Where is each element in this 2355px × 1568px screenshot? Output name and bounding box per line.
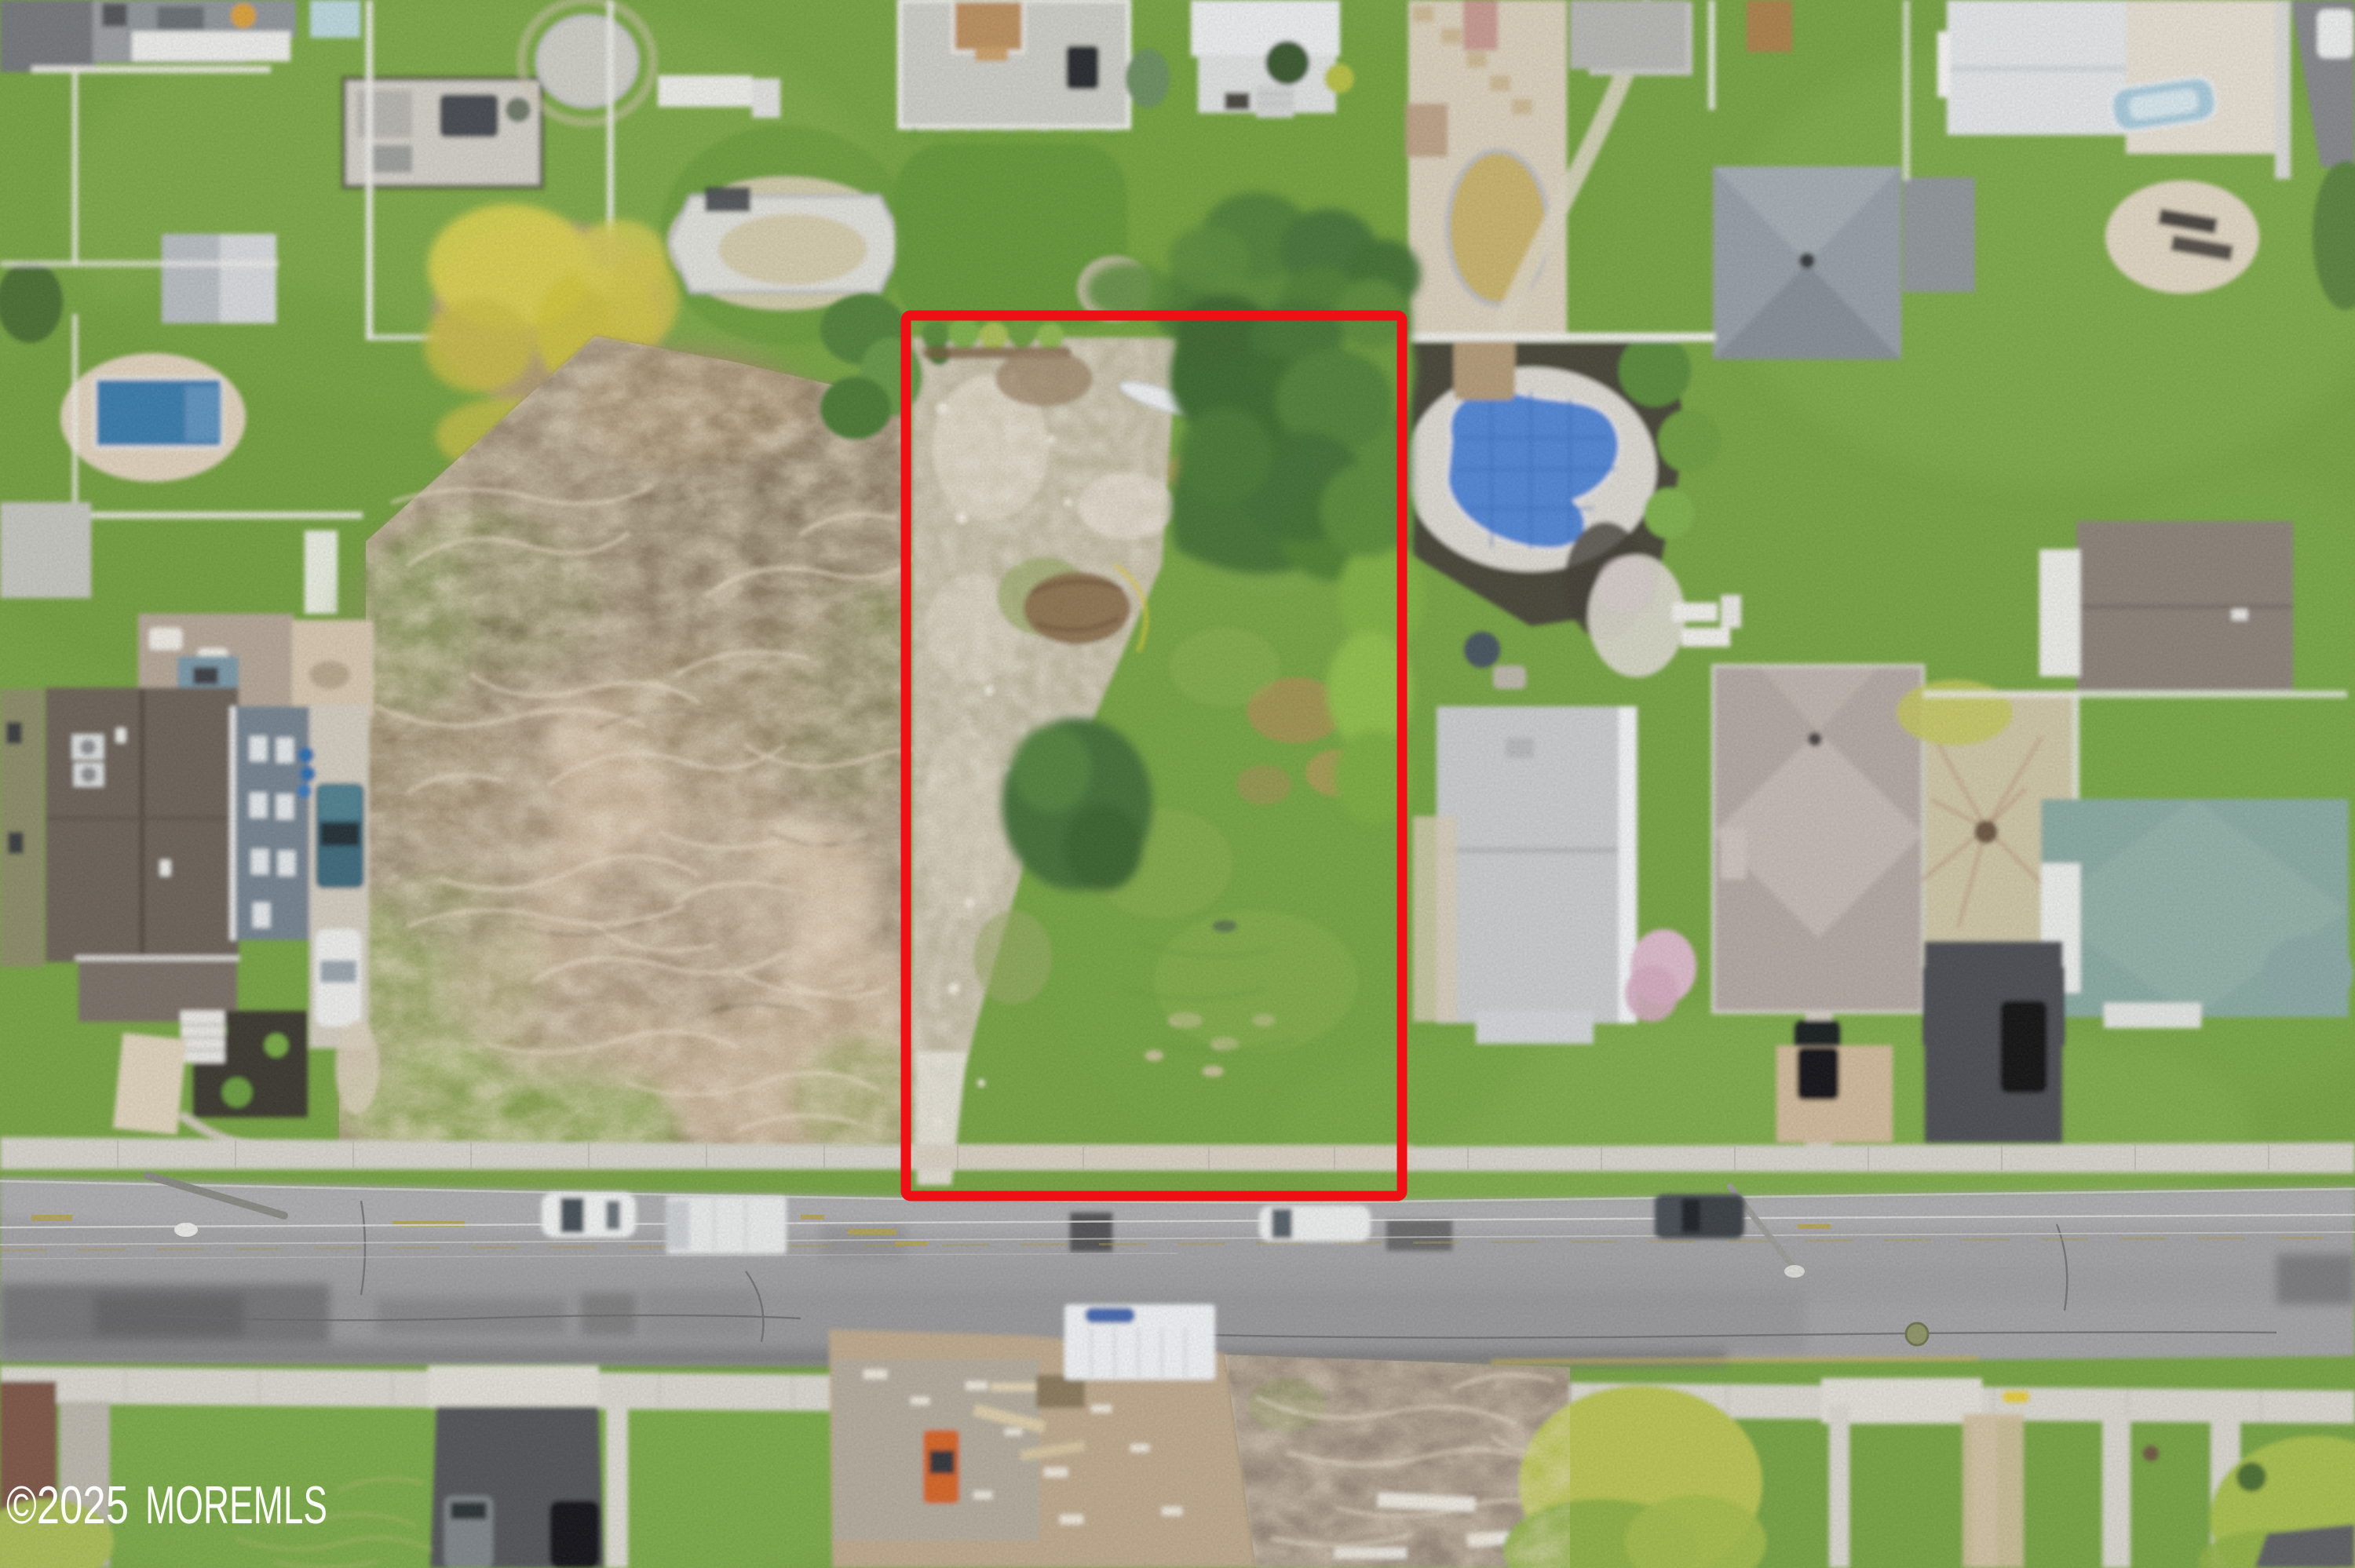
svg-text:©2025: ©2025 [6, 1475, 129, 1535]
svg-text:MOREMLS: MOREMLS [145, 1475, 327, 1535]
